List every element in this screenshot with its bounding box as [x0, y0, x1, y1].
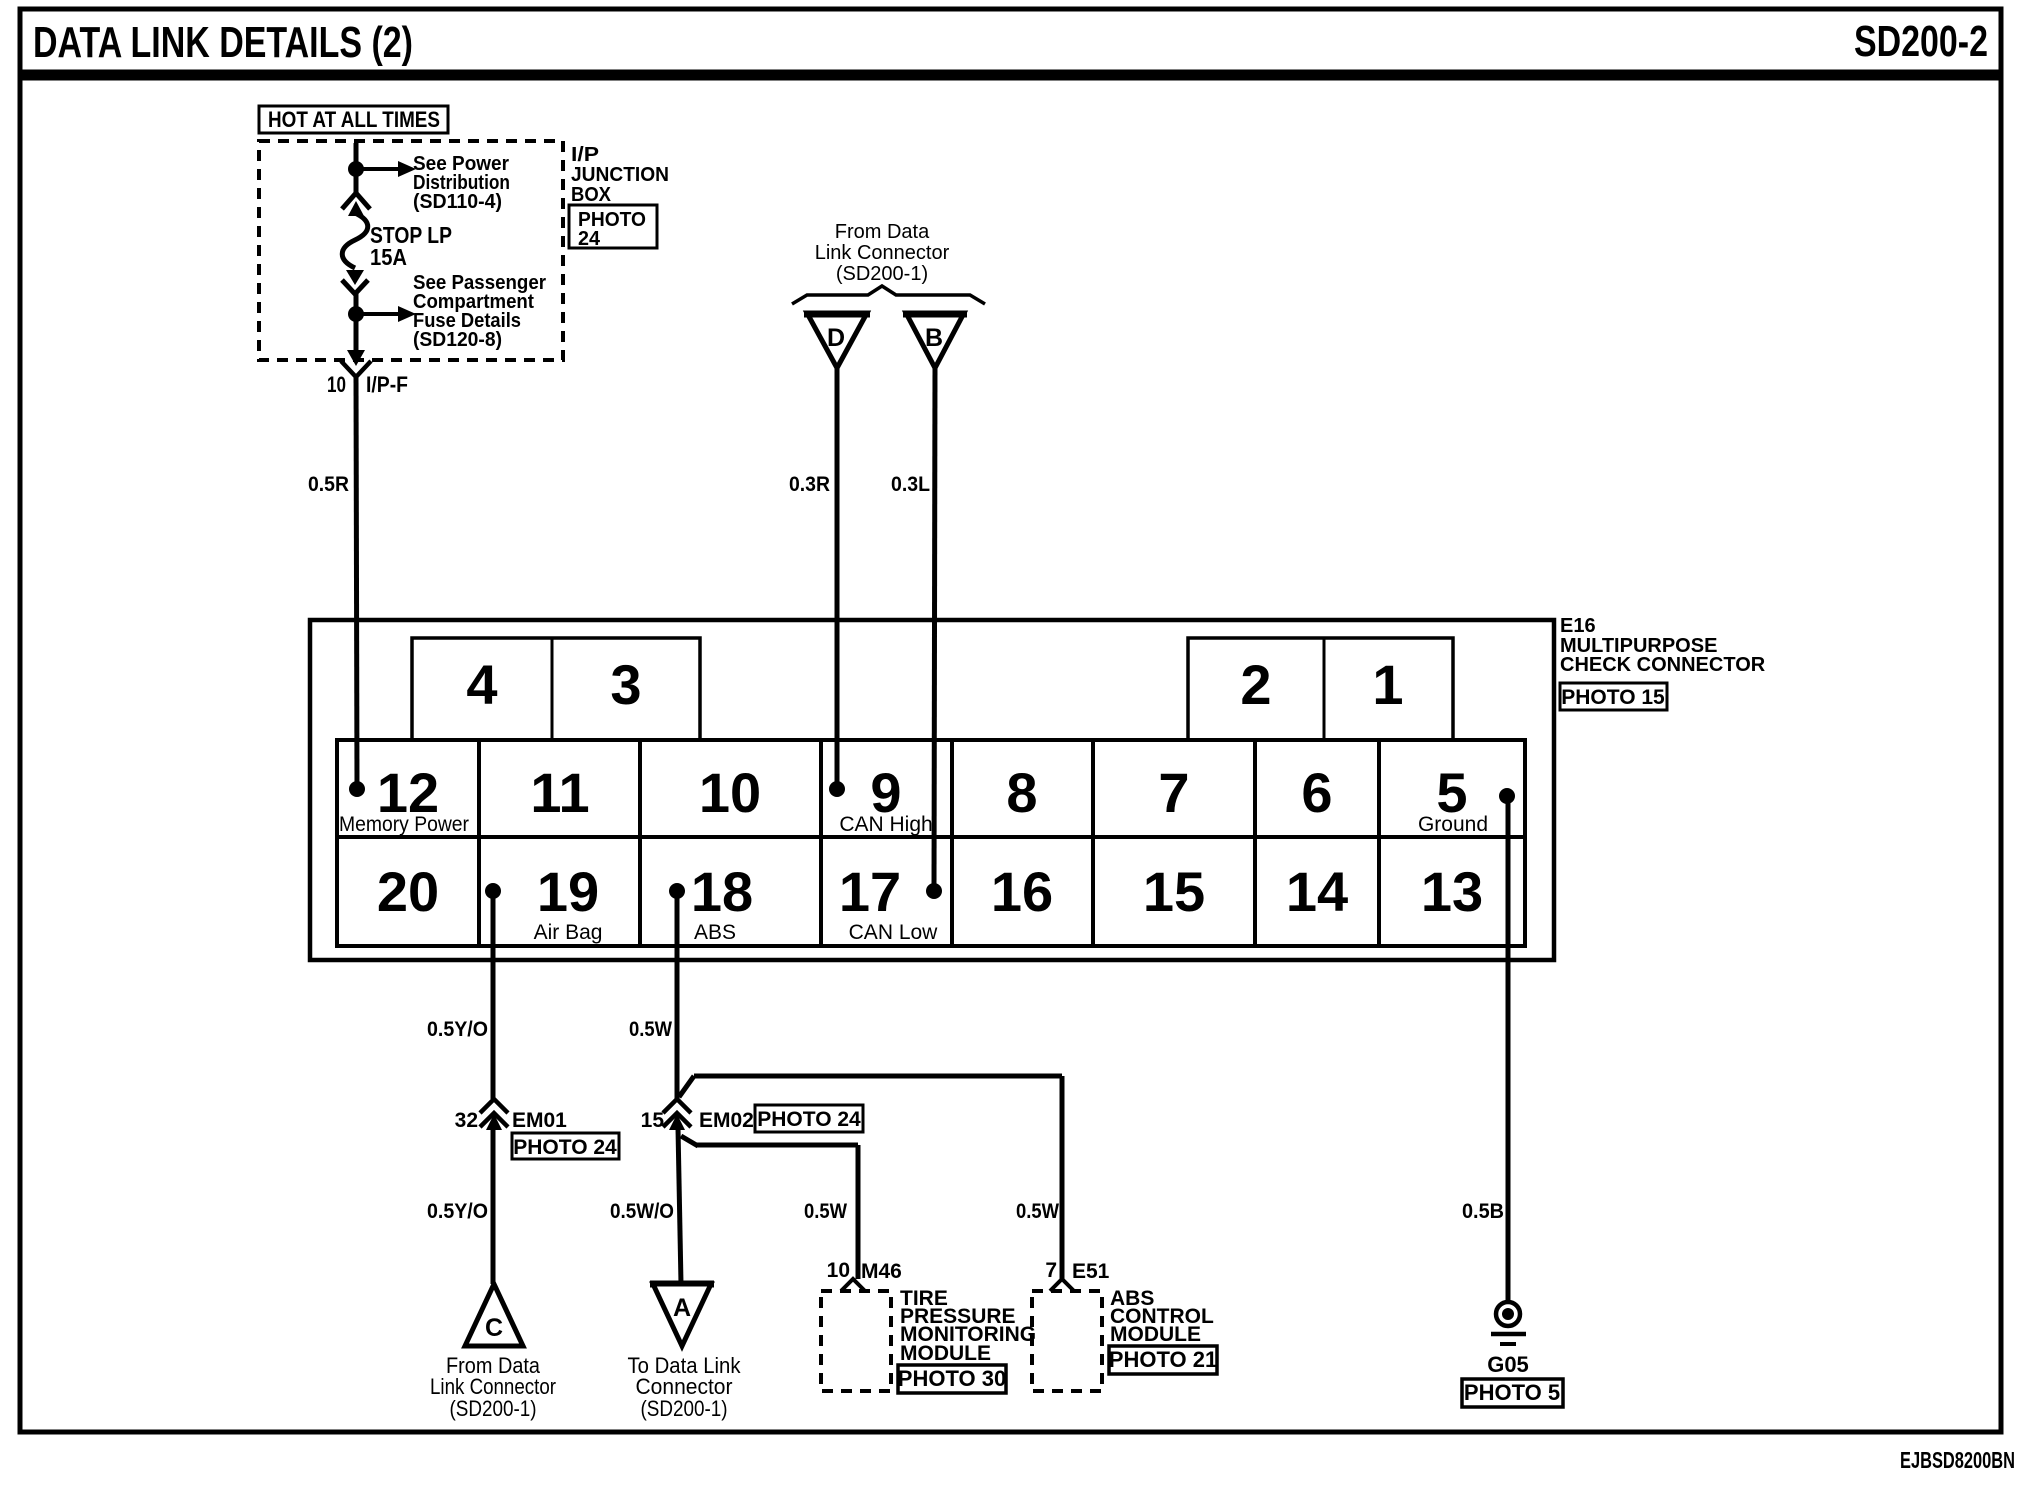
- svg-text:24: 24: [578, 228, 601, 250]
- svg-text:(SD200-1): (SD200-1): [836, 263, 928, 285]
- svg-text:0.5Y/O: 0.5Y/O: [427, 1200, 488, 1223]
- svg-text:I/P-F: I/P-F: [366, 372, 408, 397]
- svg-text:Air Bag: Air Bag: [534, 921, 603, 944]
- svg-text:1: 1: [1372, 653, 1403, 716]
- svg-text:13: 13: [1421, 860, 1483, 923]
- svg-text:EJBSD8200BN: EJBSD8200BN: [1900, 1447, 2015, 1473]
- svg-text:JUNCTION: JUNCTION: [571, 164, 669, 186]
- svg-text:(SD200-1): (SD200-1): [450, 1396, 537, 1421]
- svg-text:15: 15: [1143, 860, 1205, 923]
- svg-text:C: C: [485, 1314, 503, 1342]
- svg-text:0.5W: 0.5W: [804, 1200, 847, 1223]
- svg-text:MODULE: MODULE: [1110, 1323, 1201, 1346]
- svg-text:CAN High: CAN High: [839, 813, 932, 836]
- svg-text:0.5W/O: 0.5W/O: [610, 1200, 674, 1223]
- svg-text:8: 8: [1006, 761, 1037, 824]
- svg-text:B: B: [925, 324, 943, 352]
- svg-text:(SD110-4): (SD110-4): [413, 191, 502, 213]
- svg-text:0.5W: 0.5W: [629, 1018, 672, 1041]
- svg-text:ABS: ABS: [694, 921, 736, 944]
- svg-text:M46: M46: [861, 1260, 902, 1283]
- svg-text:0.3L: 0.3L: [891, 473, 930, 496]
- svg-text:From Data: From Data: [835, 221, 930, 243]
- svg-text:EM01: EM01: [512, 1109, 567, 1132]
- svg-text:D: D: [827, 324, 845, 352]
- svg-text:BOX: BOX: [571, 184, 612, 206]
- svg-text:6: 6: [1301, 761, 1332, 824]
- svg-text:PHOTO 15: PHOTO 15: [1561, 686, 1665, 709]
- svg-text:E16: E16: [1560, 615, 1596, 637]
- svg-text:0.5R: 0.5R: [308, 473, 349, 496]
- svg-text:PHOTO 5: PHOTO 5: [1464, 1380, 1560, 1405]
- svg-text:HOT AT ALL TIMES: HOT AT ALL TIMES: [268, 107, 440, 132]
- svg-text:PHOTO 24: PHOTO 24: [757, 1108, 861, 1131]
- svg-text:DATA LINK DETAILS (2): DATA LINK DETAILS (2): [33, 18, 413, 67]
- svg-text:Link Connector: Link Connector: [815, 242, 950, 264]
- svg-text:A: A: [673, 1294, 691, 1322]
- svg-text:14: 14: [1286, 860, 1348, 923]
- svg-text:MODULE: MODULE: [900, 1342, 991, 1365]
- svg-text:G05: G05: [1487, 1352, 1529, 1377]
- svg-text:10: 10: [699, 761, 761, 824]
- svg-text:PHOTO 24: PHOTO 24: [513, 1136, 617, 1159]
- svg-text:SD200-2: SD200-2: [1854, 17, 1988, 66]
- svg-text:10: 10: [827, 1259, 850, 1282]
- svg-text:19: 19: [537, 860, 599, 923]
- svg-text:Ground: Ground: [1418, 813, 1488, 836]
- svg-text:(SD120-8): (SD120-8): [413, 329, 502, 351]
- svg-text:3: 3: [610, 653, 641, 716]
- svg-text:18: 18: [691, 860, 753, 923]
- svg-text:(SD200-1): (SD200-1): [641, 1396, 728, 1421]
- svg-text:7: 7: [1045, 1259, 1057, 1282]
- svg-text:PHOTO 21: PHOTO 21: [1109, 1347, 1217, 1372]
- svg-text:I/P: I/P: [571, 144, 599, 166]
- svg-text:7: 7: [1158, 761, 1189, 824]
- svg-text:Memory Power: Memory Power: [339, 813, 469, 836]
- svg-text:15: 15: [641, 1109, 665, 1132]
- svg-text:16: 16: [991, 860, 1053, 923]
- svg-text:E51: E51: [1072, 1260, 1110, 1283]
- svg-text:4: 4: [466, 653, 497, 716]
- svg-text:32: 32: [455, 1109, 478, 1132]
- svg-text:10: 10: [327, 372, 346, 397]
- svg-text:2: 2: [1240, 653, 1271, 716]
- svg-text:0.5B: 0.5B: [1462, 1200, 1504, 1223]
- svg-text:PHOTO 30: PHOTO 30: [898, 1366, 1006, 1391]
- svg-text:0.5Y/O: 0.5Y/O: [427, 1018, 488, 1041]
- svg-text:20: 20: [377, 860, 439, 923]
- svg-text:15A: 15A: [370, 244, 407, 270]
- svg-text:EM02: EM02: [699, 1109, 754, 1132]
- svg-text:CAN Low: CAN Low: [849, 921, 939, 944]
- svg-text:17: 17: [839, 860, 901, 923]
- svg-text:CHECK CONNECTOR: CHECK CONNECTOR: [1560, 654, 1766, 676]
- svg-text:0.3R: 0.3R: [789, 473, 830, 496]
- svg-text:0.5W: 0.5W: [1016, 1200, 1059, 1223]
- svg-text:11: 11: [530, 761, 589, 824]
